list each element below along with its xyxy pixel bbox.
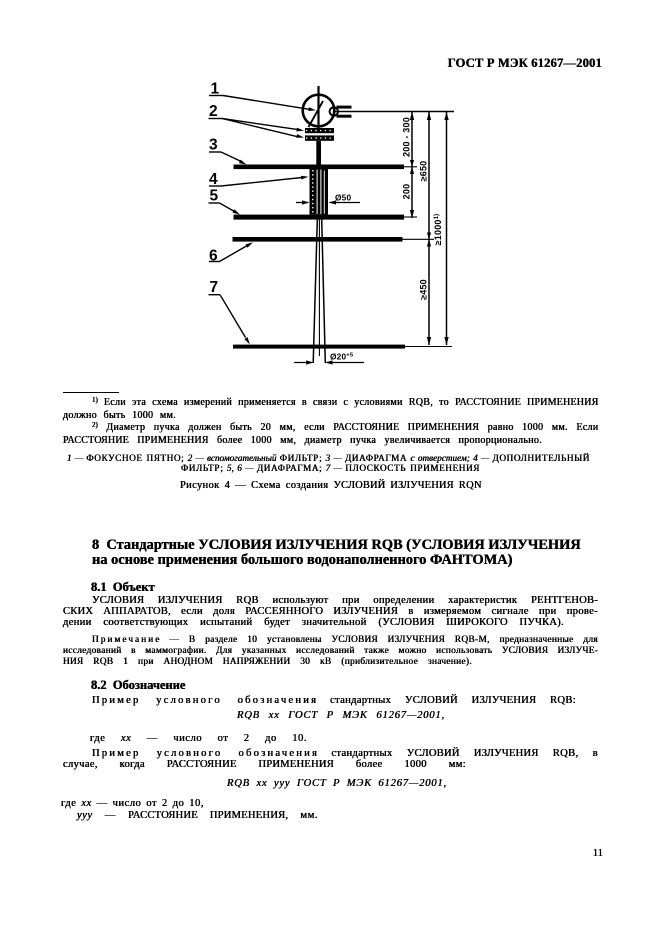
svg-text:≥650: ≥650 xyxy=(419,161,429,182)
svg-text:≥450: ≥450 xyxy=(419,279,429,300)
svg-text:7: 7 xyxy=(210,279,219,296)
svg-text:≥10001): ≥10001) xyxy=(433,214,443,246)
svg-text:Ø20+5: Ø20+5 xyxy=(330,352,354,362)
svg-text:Ø50: Ø50 xyxy=(335,193,351,203)
svg-text:5: 5 xyxy=(210,188,219,205)
svg-text:3: 3 xyxy=(209,137,218,154)
svg-text:200: 200 xyxy=(402,184,412,200)
svg-text:2: 2 xyxy=(209,103,218,120)
svg-text:200 - 300: 200 - 300 xyxy=(402,117,412,157)
